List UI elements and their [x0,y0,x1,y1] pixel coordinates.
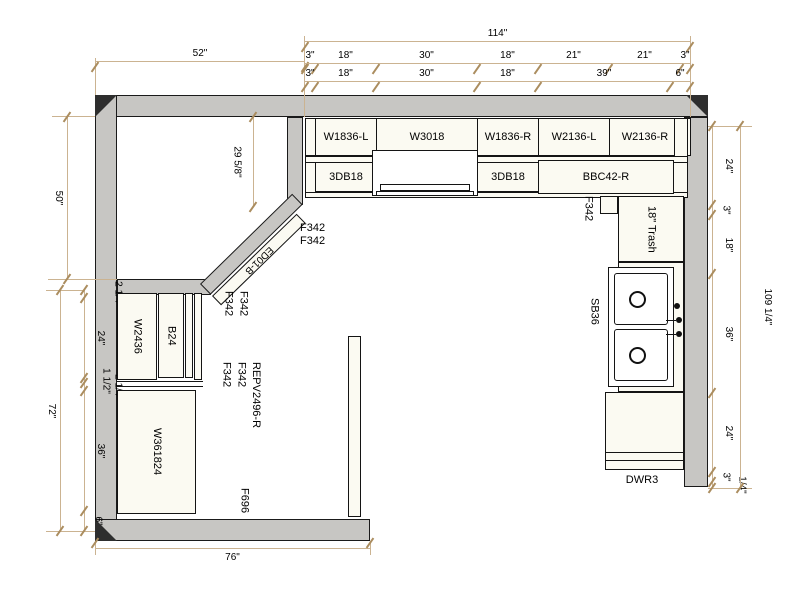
wall-cabinet-w2136-r: W2136-R [609,118,681,156]
cabinet-label: W1836-R [485,131,531,144]
filler-label: F342 [220,362,233,428]
sink-drain-bottom [629,347,646,364]
counter-edge [117,381,203,382]
range-handle-bar [376,191,474,196]
filler-label: F342 [300,235,325,248]
cabinet-label: B24 [165,326,178,346]
filler-note-corner: F342 F342 [300,222,325,247]
filler-block [600,196,618,214]
faucet-handle-line [666,320,676,321]
filler-note-f696: F696 [238,488,251,518]
wall-cabinet-w361824: W361824 [117,390,196,514]
dim-label: 30" [419,68,434,80]
dim-label: 3" [305,68,314,80]
faucet-handle [676,317,682,323]
wall-left [95,95,117,541]
wall-cabinet-w2436: W2436 [117,293,157,380]
base-cabinet-3db18-right: 3DB18 [477,162,539,192]
base-cabinet-3db18-left: 3DB18 [315,162,377,192]
dim-label: 30" [419,50,434,62]
wall-cabinet-w1836-r: W1836-R [477,118,539,156]
filler-label: F696 [238,488,251,513]
cabinet-label: W3018 [410,131,445,144]
dim-label: 109 1/4" [762,289,774,326]
dim-label: 39" [597,68,612,80]
cabinet-label: W361824 [150,428,163,475]
cabinet-label: 18" Trash [645,206,658,253]
filler-label: F342 [582,196,595,221]
cabinet-label: W2136-R [622,131,668,144]
dim-label: 24" [95,331,107,346]
filler-label: F342 [237,291,250,316]
refrigerator-end-panel [194,293,202,380]
dishwasher-line [605,452,684,453]
dim-label: 36" [723,326,735,341]
dim-label: 36" [95,444,107,459]
range-handle [380,184,470,191]
filler-label: F342 [222,291,235,316]
filler-note-left-lower: F342 F342 REPV2496-R [220,362,262,428]
dim-label: 18" [500,68,515,80]
counter-edge [117,386,203,387]
dim-right-chain: 24" 3" 18" 36" 24" 3" 1/4" [712,126,726,488]
extension-line [46,531,95,532]
extension-line [48,279,117,280]
cabinet-label: W2436 [131,319,144,354]
dim-label: 52" [193,48,208,60]
dim-label: 72" [46,403,58,418]
dim-label: 24" [723,158,735,173]
dim-top-chain-lower: 3" 18" 30" 18" 39" 6" [305,68,690,82]
sink-base-label: SB36 [588,298,601,330]
dishwasher-label: DWR3 [602,474,682,487]
tall-end-panel [348,336,361,517]
dim-label: 3" [305,50,314,62]
dim-label: 18" [338,68,353,80]
dim-left-overall: 72" [60,290,74,531]
cabinet-label: W1836-L [324,131,369,144]
panel-label: REPV2496-R [249,362,262,428]
faucet-handle [676,331,682,337]
wall-top [95,95,708,117]
dim-corner-depth: 29 5/8" [253,117,267,207]
cabinet-label: 3DB18 [491,171,525,184]
faucet-spout [674,303,680,309]
filler-note-left-upper: F342 F342 [222,291,249,316]
base-cabinet-b24: B24 [158,293,184,378]
dim-label: 24" [723,425,735,440]
dim-bottom-wall: 76" [95,548,370,562]
dim-label: 29 5/8" [231,146,243,177]
dim-label: 21" [566,50,581,62]
dishwasher-line [605,460,684,461]
trash-cabinet: 18" Trash [618,196,684,262]
dim-label: 114" [488,28,508,40]
wall-cabinet-w2136-l: W2136-L [538,118,610,156]
dim-label: 18" [500,50,515,62]
dim-top-chain-upper: 3" 18" 30" 18" 21" 21" 3" [305,50,690,64]
dim-label: 3" [720,205,732,214]
panel-strip [185,293,193,378]
dim-top-left-wall: 52" [95,48,305,62]
dim-label: 50" [53,191,65,206]
dim-left-chain: 2 1/4" 24" 1 1/2" 2 1/4" 36" 6" [84,290,98,531]
dim-label: 21" [637,50,652,62]
filler-label: F342 [235,362,248,428]
dim-label: 3" [720,472,732,481]
wall-bottom [95,519,370,541]
dim-label: 3" [680,50,689,62]
dishwasher-cabinet [605,392,684,470]
dim-top-overall: 114" [305,28,690,42]
kitchen-floor-plan: 52" 114" 3" 18" 30" 18" 21" 21" 3" 3" 18… [0,0,792,612]
cabinet-label: 3DB18 [329,171,363,184]
dim-left-upper: 50" [67,117,81,279]
dim-label: 6" [92,516,104,525]
filler-note-right: F342 [582,196,595,226]
dim-label: 76" [225,552,240,564]
dim-label: 1 1/2" [100,368,112,394]
dim-right-overall: 109 1/4" [740,126,754,488]
base-cabinet-bbc42-r: BBC42-R [538,160,674,194]
faucet-handle-line [666,334,676,335]
cabinet-label: SB36 [588,298,601,325]
wall-cabinet-w1836-l: W1836-L [315,118,377,156]
cabinet-label: W2136-L [552,131,597,144]
dim-label: 18" [723,237,735,252]
sink-drain-top [629,291,646,308]
dim-label: 6" [675,68,684,80]
cabinet-label: BBC42-R [583,171,629,184]
wall-interior-vertical [287,117,303,205]
filler-label: F342 [300,222,325,235]
dim-label: 18" [338,50,353,62]
